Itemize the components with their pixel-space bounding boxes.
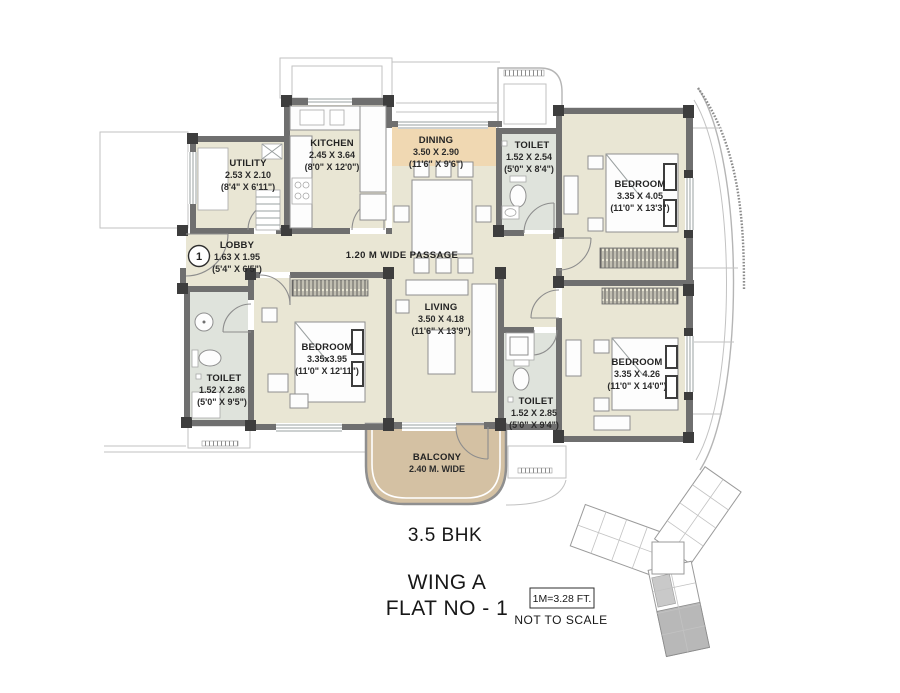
svg-text:DINING: DINING — [419, 135, 453, 146]
dining-table — [412, 180, 472, 254]
bedroom-left-window — [276, 423, 342, 432]
svg-text:(11'6" X 13'9"): (11'6" X 13'9") — [411, 326, 470, 336]
unit-type-label: 3.5 BHK — [408, 525, 482, 546]
sofa-top — [406, 280, 468, 295]
svg-text:UTILITY: UTILITY — [229, 158, 267, 169]
sofa-right — [472, 284, 496, 392]
bedroom-bottom-window — [685, 336, 694, 392]
wardrobe — [602, 288, 678, 304]
kitchen-window — [308, 96, 352, 105]
wc — [199, 350, 221, 366]
utility-rack — [256, 190, 280, 230]
fixture-icon — [508, 397, 513, 402]
svg-text:(11'6" X 9'6"): (11'6" X 9'6") — [409, 159, 463, 169]
svg-text:2.53 X 2.10: 2.53 X 2.10 — [225, 170, 271, 180]
svg-text:(8'4" X 6'11"): (8'4" X 6'11") — [221, 182, 275, 192]
wc — [510, 185, 526, 207]
pillow — [352, 330, 363, 354]
svg-text:LOBBY: LOBBY — [220, 240, 255, 251]
svg-text:BEDROOM: BEDROOM — [611, 357, 662, 368]
svg-text:3.50 X 2.90: 3.50 X 2.90 — [413, 147, 459, 157]
wardrobe — [600, 248, 678, 268]
svg-text:3.35 X 4.26: 3.35 X 4.26 — [614, 369, 660, 379]
coffee-table — [428, 330, 455, 374]
svg-text:(5'0" X 9'4"): (5'0" X 9'4") — [509, 420, 559, 430]
svg-text:(11'0" X 14'0"): (11'0" X 14'0") — [607, 381, 666, 391]
key-plan — [570, 467, 741, 657]
dining-window — [398, 120, 488, 129]
flat-number-label: FLAT NO - 1 — [386, 597, 509, 620]
wing-label: WING A — [408, 571, 487, 594]
key-plan-core — [652, 542, 684, 574]
kitchen-label: KITCHEN 2.45 X 3.64 (8'0" X 12'0") — [305, 138, 360, 172]
svg-text:TOILET: TOILET — [519, 396, 554, 407]
wc — [513, 368, 529, 390]
svg-text:1.52 X 2.86: 1.52 X 2.86 — [199, 385, 245, 395]
balcony-slider-window — [402, 423, 456, 431]
fixture-icon — [196, 374, 201, 379]
svg-text:2.40 M. WIDE: 2.40 M. WIDE — [409, 464, 465, 474]
floor-plan-drawing: UTILITY 2.53 X 2.10 (8'4" X 6'11") KITCH… — [0, 0, 900, 693]
bedroom-top-label: BEDROOM 3.35 X 4.05 (11'0" X 13'3") — [610, 179, 669, 213]
svg-text:3.35x3.95: 3.35x3.95 — [307, 354, 347, 364]
scale-note: 1M=3.28 FT. NOT TO SCALE — [514, 588, 607, 627]
svg-text:(5'4" X 6'5"): (5'4" X 6'5") — [212, 264, 262, 274]
svg-text:(5'0" X 8'4"): (5'0" X 8'4") — [504, 164, 554, 174]
scale-conversion: 1M=3.28 FT. — [533, 593, 592, 605]
svg-text:(11'0" X 13'3"): (11'0" X 13'3") — [610, 203, 669, 213]
pillow — [666, 376, 677, 398]
svg-text:BEDROOM: BEDROOM — [301, 342, 352, 353]
passage-label: 1.20 M WIDE PASSAGE — [346, 250, 458, 261]
pillow — [666, 346, 677, 368]
washbasin — [510, 337, 528, 355]
svg-text:1.52 X 2.54: 1.52 X 2.54 — [506, 152, 552, 162]
floor-plan-page: UTILITY 2.53 X 2.10 (8'4" X 6'11") KITCH… — [0, 0, 900, 693]
mini-passage-floor — [504, 272, 556, 327]
bedroom-top-window — [685, 178, 694, 230]
utility-window — [188, 152, 197, 204]
svg-text:(5'0" X 9'5"): (5'0" X 9'5") — [197, 397, 247, 407]
svg-text:BEDROOM: BEDROOM — [614, 179, 665, 190]
svg-text:BALCONY: BALCONY — [413, 452, 462, 463]
fixture-icon — [502, 141, 507, 146]
svg-text:2.45 X 3.64: 2.45 X 3.64 — [309, 150, 355, 160]
svg-text:3.35 X 4.05: 3.35 X 4.05 — [617, 191, 663, 201]
pillow — [664, 164, 676, 190]
svg-text:1.63 X 1.95: 1.63 X 1.95 — [214, 252, 260, 262]
svg-text:1: 1 — [196, 251, 202, 263]
svg-text:1.52 X 2.85: 1.52 X 2.85 — [511, 408, 557, 418]
svg-text:LIVING: LIVING — [425, 302, 458, 313]
svg-text:TOILET: TOILET — [515, 140, 550, 151]
entry-marker: 1 — [189, 246, 210, 267]
svg-text:(11'0" X 12'11"): (11'0" X 12'11") — [295, 366, 359, 376]
svg-text:TOILET: TOILET — [207, 373, 242, 384]
wardrobe — [292, 280, 368, 296]
key-plan-wing-down — [648, 561, 709, 656]
bedroom-bottom-label: BEDROOM 3.35 X 4.26 (11'0" X 14'0") — [607, 357, 666, 391]
svg-text:3.50 X 4.18: 3.50 X 4.18 — [418, 314, 464, 324]
svg-text:KITCHEN: KITCHEN — [310, 138, 354, 149]
not-to-scale-label: NOT TO SCALE — [514, 613, 607, 627]
svg-text:(8'0" X 12'0"): (8'0" X 12'0") — [305, 162, 360, 172]
